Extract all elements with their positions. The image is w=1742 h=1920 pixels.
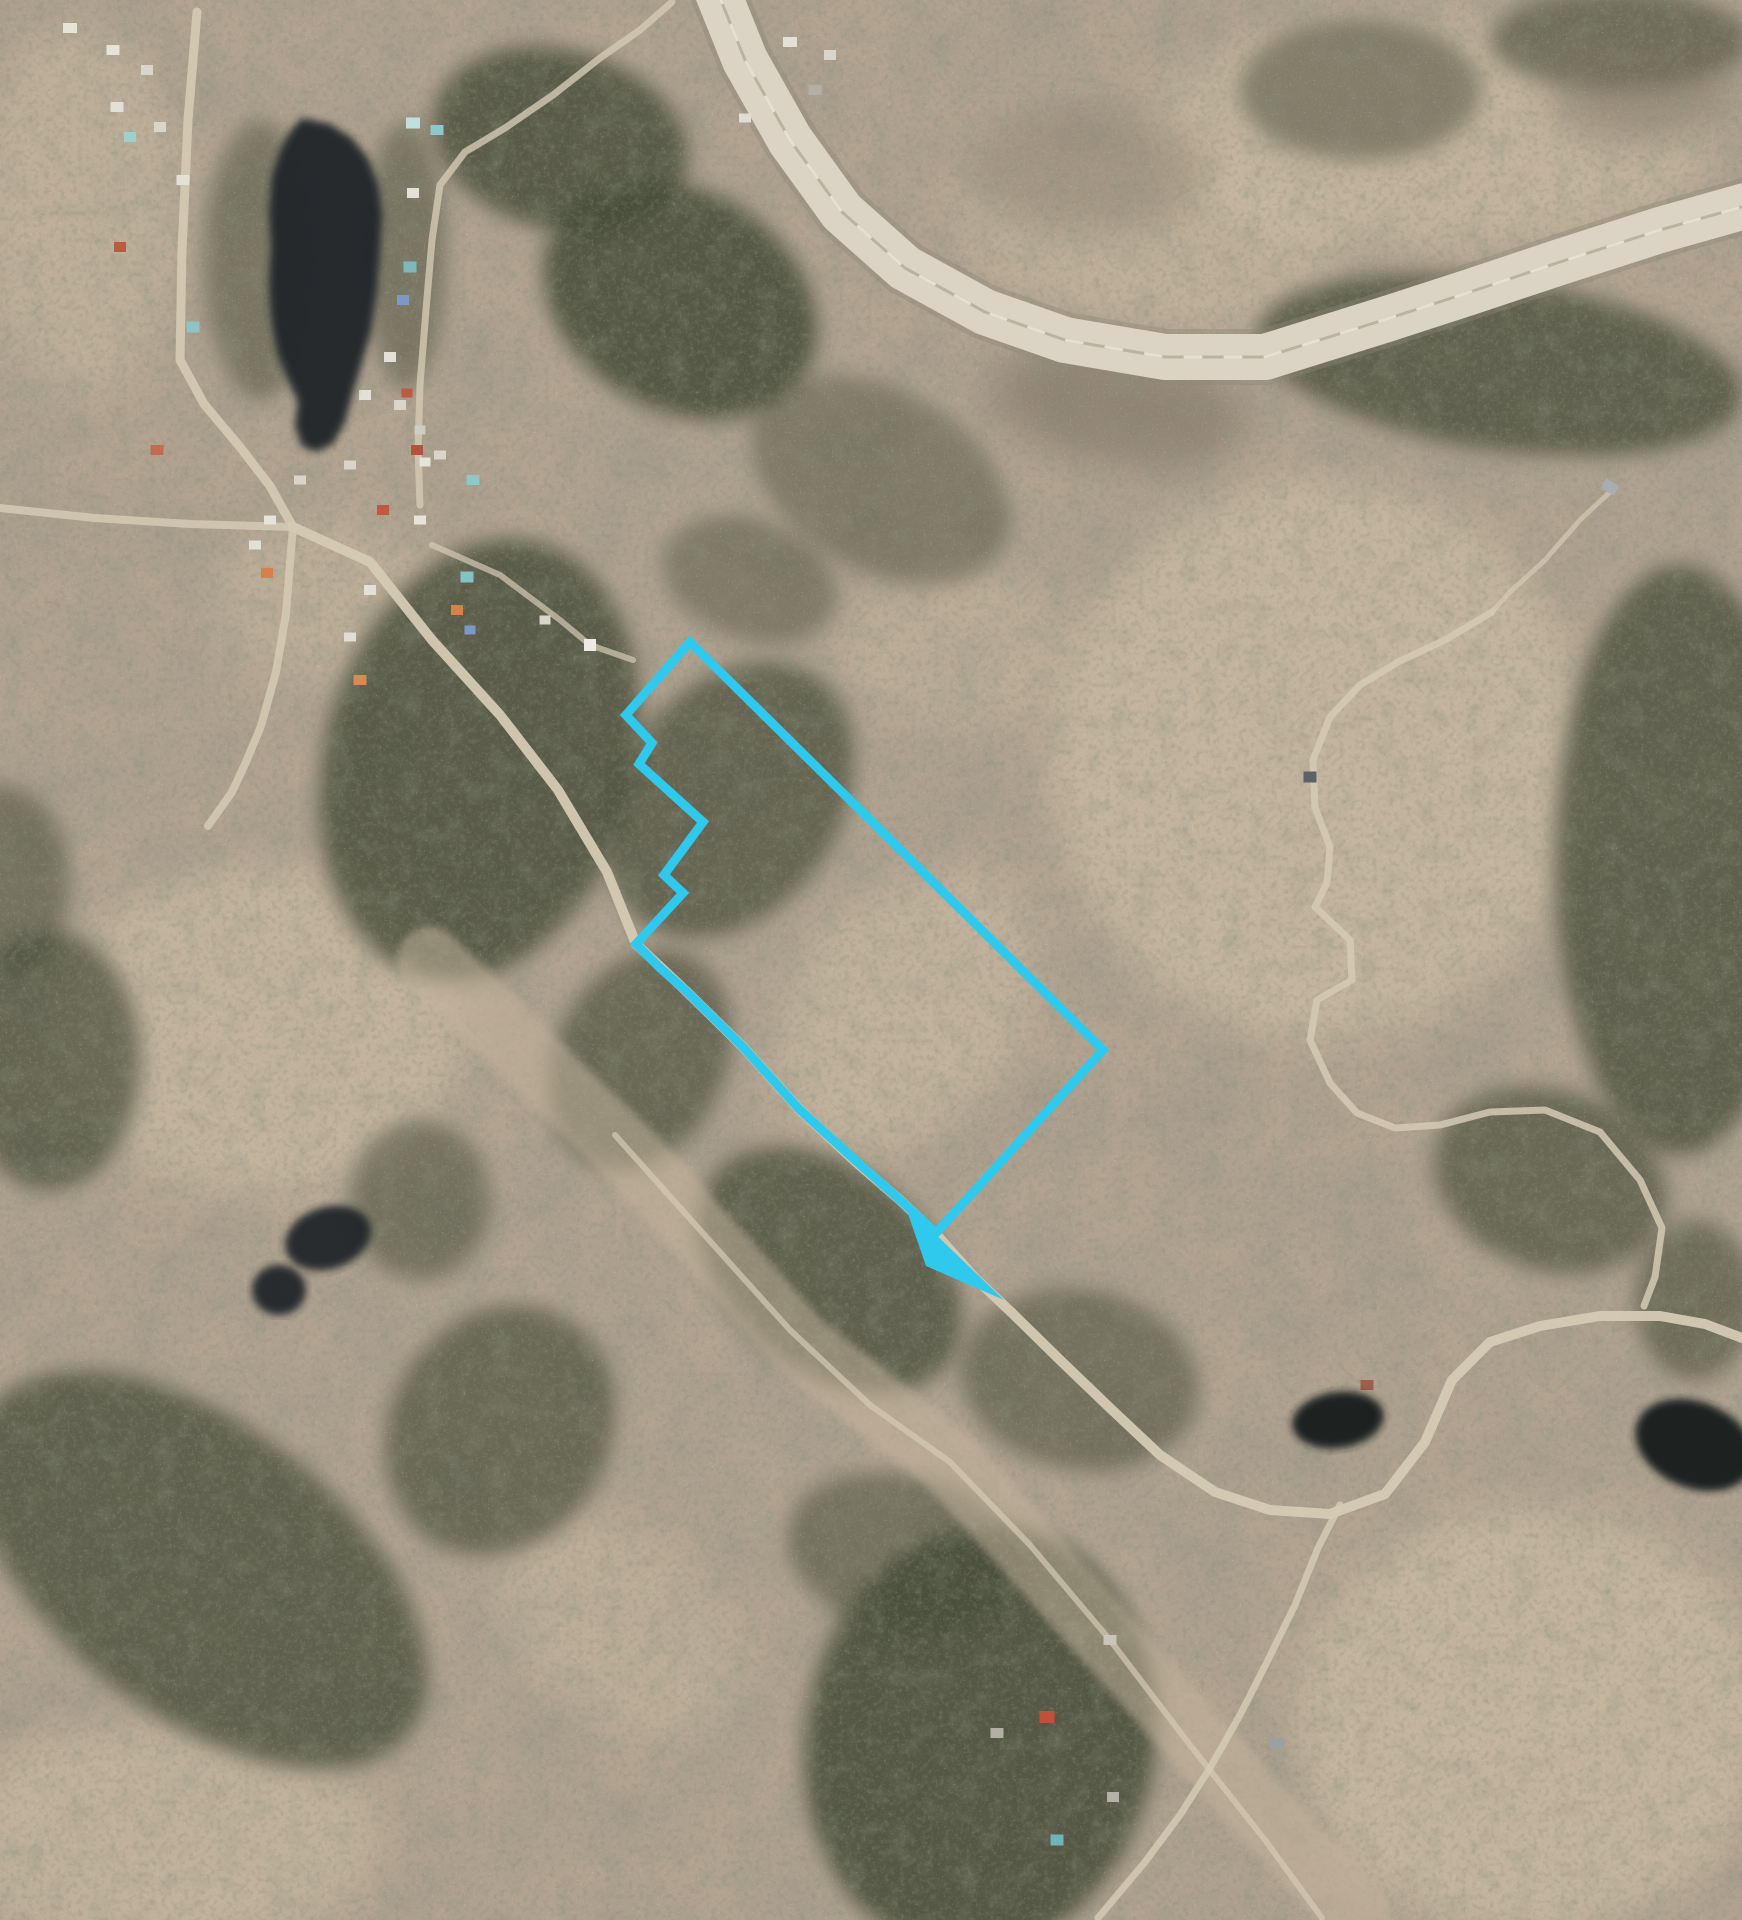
building-roof	[1270, 1738, 1284, 1749]
building-roof	[107, 45, 120, 55]
building-roof	[824, 50, 836, 60]
building-roof	[467, 475, 480, 485]
building-roof	[739, 114, 751, 123]
building-roof	[404, 262, 417, 273]
building-roof	[1304, 772, 1317, 783]
building-roof	[434, 451, 446, 460]
building-roof	[1051, 1835, 1064, 1846]
building-roof	[377, 505, 389, 515]
building-roof	[177, 175, 190, 185]
building-roof	[294, 476, 306, 485]
building-roof	[111, 102, 124, 112]
building-roof	[264, 516, 276, 525]
building-roof	[187, 322, 200, 333]
building-roof	[415, 426, 426, 435]
building-roof	[261, 568, 273, 578]
building-roof	[407, 188, 419, 198]
building-roof	[354, 675, 367, 685]
building-roof	[402, 389, 413, 398]
map-viewport[interactable]	[0, 0, 1742, 1920]
building-roof	[359, 390, 371, 400]
building-roof	[124, 132, 136, 142]
building-roof	[406, 118, 420, 129]
building-roof	[1107, 1792, 1119, 1802]
building-roof	[114, 242, 126, 252]
building-roof	[451, 605, 463, 615]
building-roof	[364, 585, 376, 595]
building-roof	[809, 85, 822, 95]
building-roof	[411, 445, 423, 455]
building-roof	[154, 122, 166, 132]
building-roof	[420, 458, 431, 467]
building-roof	[991, 1728, 1004, 1738]
building-roof	[394, 400, 406, 410]
building-roof	[431, 125, 444, 135]
building-roof	[540, 616, 551, 625]
building-roof	[141, 65, 153, 75]
building-roof	[584, 639, 596, 651]
pond-southwest-b	[252, 1265, 306, 1315]
building-roof	[63, 23, 77, 33]
building-roof	[1040, 1711, 1055, 1723]
building-roof	[465, 626, 476, 635]
building-roof	[461, 572, 474, 583]
building-roof	[1104, 1635, 1117, 1645]
building-roof	[414, 516, 426, 525]
building-roof	[1361, 1380, 1374, 1390]
building-roof	[249, 541, 261, 550]
building-roof	[397, 295, 409, 305]
building-roof	[783, 37, 797, 47]
building-roof	[151, 445, 164, 455]
building-roof	[384, 352, 396, 362]
building-roof	[344, 633, 356, 642]
aerial-photo-map[interactable]	[0, 0, 1742, 1920]
building-roof	[344, 461, 356, 470]
